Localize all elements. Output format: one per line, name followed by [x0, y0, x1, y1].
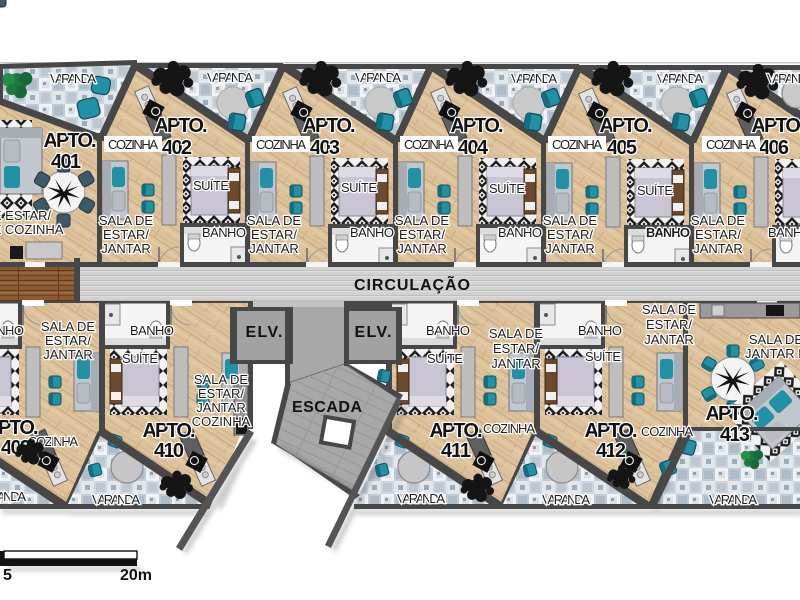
svg-text:403: 403 [310, 137, 340, 159]
svg-text:BANHO: BANHO [768, 225, 800, 240]
svg-text:APTO.: APTO. [752, 115, 800, 137]
svg-text:VARANDA: VARANDA [355, 70, 401, 85]
svg-text:BANHO: BANHO [350, 225, 394, 240]
svg-text:ESTAR/: ESTAR/ [646, 317, 692, 332]
svg-text:SUÍTE: SUÍTE [427, 351, 463, 366]
svg-text:JANTAR: JANTAR [101, 241, 151, 256]
svg-text:SUÍTE: SUÍTE [489, 181, 525, 196]
svg-text:JANTAR: JANTAR [491, 356, 541, 371]
svg-text:ESTAR/: ESTAR/ [493, 341, 539, 356]
svg-text:COZINHA: COZINHA [483, 421, 535, 436]
svg-text:APTO.: APTO. [155, 115, 208, 137]
svg-text:JANTAR E: JANTAR E [745, 346, 800, 361]
svg-text:BANHO: BANHO [578, 323, 622, 338]
svg-text:SALA DE: SALA DE [642, 302, 697, 317]
svg-text:5: 5 [3, 567, 12, 584]
svg-text:SUÍTE: SUÍTE [585, 349, 621, 364]
svg-text:JANTAR: JANTAR [43, 347, 93, 362]
svg-text:SALA DE: SALA DE [194, 372, 249, 387]
svg-text:E ESTAR/: E ESTAR/ [0, 208, 52, 223]
svg-text:VARANDA: VARANDA [207, 70, 253, 85]
svg-text:402: 402 [162, 137, 192, 159]
svg-text:BANHO: BANHO [498, 225, 542, 240]
svg-text:VARANDA: VARANDA [50, 71, 96, 86]
svg-text:VARANDA: VARANDA [397, 491, 445, 506]
svg-text:VARANDA: VARANDA [767, 71, 800, 86]
svg-text:ESTAR/: ESTAR/ [103, 227, 149, 242]
svg-text:ESTAR/: ESTAR/ [45, 333, 91, 348]
svg-text:411: 411 [441, 440, 471, 462]
svg-text:COZINHA: COZINHA [192, 414, 251, 429]
svg-text:413: 413 [720, 424, 750, 446]
svg-text:APTO.: APTO. [451, 115, 504, 137]
svg-text:BANHO: BANHO [130, 323, 174, 338]
svg-text:APTO.: APTO. [44, 130, 97, 152]
svg-text:SUÍTE: SUÍTE [341, 180, 377, 195]
svg-text:412: 412 [596, 440, 626, 462]
svg-text:20m: 20m [120, 567, 152, 584]
svg-text:JANTAR: JANTAR [196, 400, 246, 415]
svg-text:VARANDA: VARANDA [657, 71, 703, 86]
svg-text:406: 406 [759, 137, 789, 159]
svg-text:APTO.: APTO. [600, 115, 653, 137]
svg-text:VARANDA: VARANDA [542, 492, 590, 507]
svg-text:ESCADA: ESCADA [292, 399, 362, 416]
svg-text:APTO.: APTO. [303, 115, 356, 137]
svg-text:APTO.: APTO. [143, 420, 196, 442]
svg-text:404: 404 [458, 137, 489, 159]
svg-text:APTO.: APTO. [706, 403, 759, 425]
svg-text:VARANDA: VARANDA [511, 71, 557, 86]
svg-text:SUÍTE: SUÍTE [193, 178, 229, 193]
svg-text:COZINHA: COZINHA [108, 137, 158, 152]
svg-text:BANHO: BANHO [0, 323, 24, 338]
svg-text:SALA DE: SALA DE [749, 332, 800, 347]
svg-text:CIRCULAÇÃO: CIRCULAÇÃO [354, 274, 470, 294]
svg-text:SUÍTE: SUÍTE [122, 351, 158, 366]
svg-text:BANHO: BANHO [646, 225, 690, 240]
svg-text:VARANDA: VARANDA [709, 492, 757, 507]
svg-text:ESTAR/: ESTAR/ [198, 386, 244, 401]
svg-text:JANTAR: JANTAR [644, 332, 694, 347]
svg-text:405: 405 [607, 137, 637, 159]
svg-text:APTO.: APTO. [585, 420, 638, 442]
svg-text:SALA DE: SALA DE [41, 319, 96, 334]
svg-text:SUÍTE: SUÍTE [637, 183, 673, 198]
svg-text:SALA DE: SALA DE [489, 326, 544, 341]
svg-text:VARANDA: VARANDA [0, 489, 26, 504]
svg-text:APTO.: APTO. [430, 420, 483, 442]
svg-text:SALA DE: SALA DE [99, 213, 154, 228]
svg-text:BANHO: BANHO [426, 323, 470, 338]
svg-text:401: 401 [51, 151, 81, 173]
svg-text:BANHO: BANHO [202, 225, 246, 240]
svg-text:410: 410 [154, 440, 184, 462]
svg-text:E COZINHA: E COZINHA [0, 222, 64, 237]
svg-text:VARANDA: VARANDA [92, 492, 140, 507]
